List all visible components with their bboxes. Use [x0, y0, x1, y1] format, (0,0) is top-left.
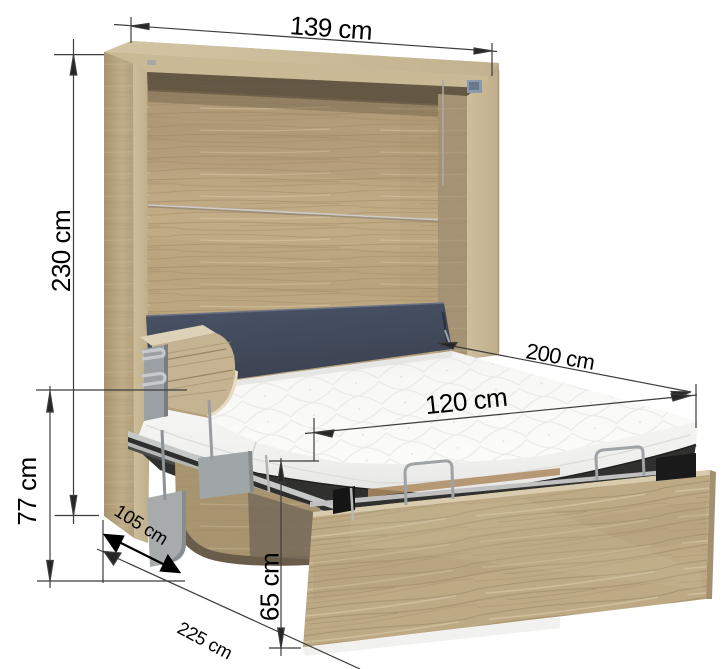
svg-text:230 cm: 230 cm: [46, 210, 76, 292]
svg-text:77 cm: 77 cm: [12, 457, 42, 525]
svg-text:65 cm: 65 cm: [255, 553, 285, 621]
svg-text:139 cm: 139 cm: [289, 10, 373, 46]
